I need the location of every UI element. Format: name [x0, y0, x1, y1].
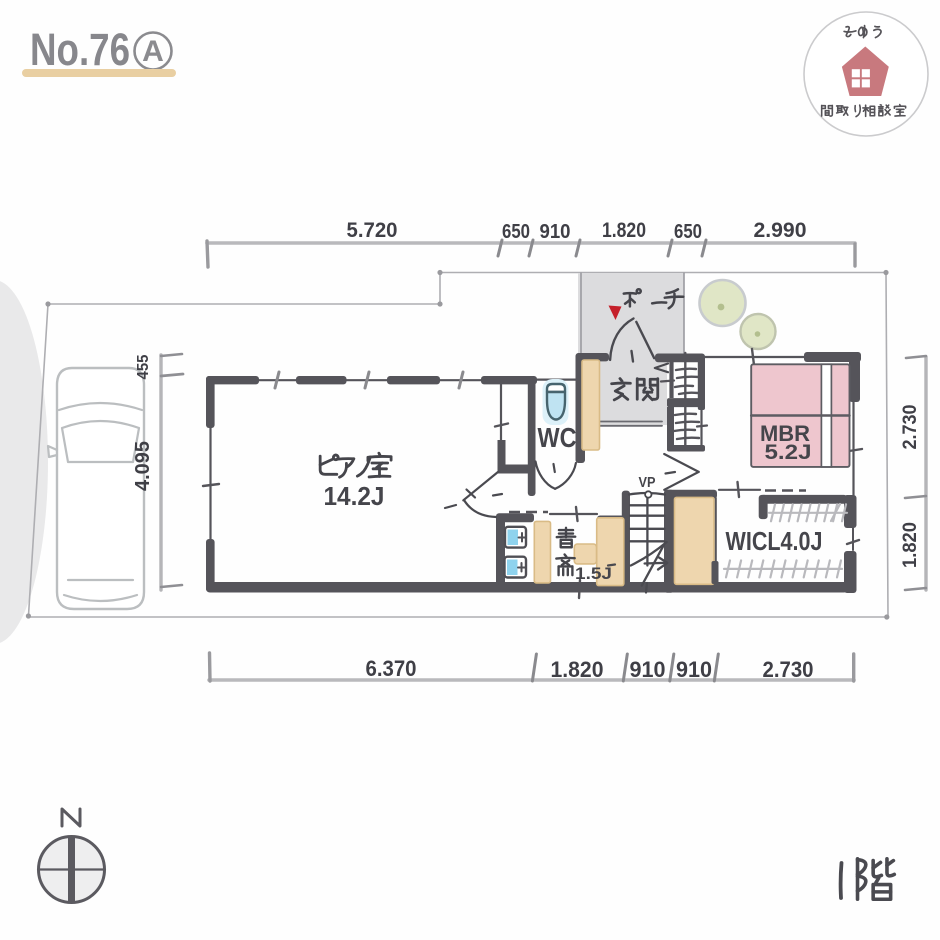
svg-text:2.730: 2.730 [763, 657, 814, 682]
svg-text:1.820: 1.820 [900, 522, 921, 568]
svg-text:650: 650 [674, 221, 702, 243]
svg-text:WICL4.0J: WICL4.0J [726, 526, 823, 556]
svg-text:1.820: 1.820 [602, 219, 646, 242]
svg-text:1.820: 1.820 [551, 657, 604, 682]
svg-text:910: 910 [676, 657, 712, 682]
svg-text:A: A [142, 35, 164, 68]
svg-text:6.370: 6.370 [366, 656, 417, 681]
svg-text:4.095: 4.095 [132, 441, 154, 491]
svg-text:650: 650 [502, 221, 530, 243]
svg-text:2.990: 2.990 [754, 219, 807, 242]
svg-text:No.76: No.76 [30, 24, 130, 75]
svg-text:910: 910 [630, 657, 666, 682]
svg-text:455: 455 [135, 354, 152, 379]
svg-text:910: 910 [540, 221, 571, 243]
svg-text:5.2J: 5.2J [765, 441, 812, 464]
svg-text:2.730: 2.730 [900, 405, 921, 450]
svg-text:5.720: 5.720 [347, 219, 398, 242]
svg-text:WC: WC [538, 422, 577, 453]
svg-text:VP: VP [639, 475, 656, 491]
svg-text:1.5J: 1.5J [575, 564, 612, 583]
svg-text:14.2J: 14.2J [324, 481, 385, 511]
